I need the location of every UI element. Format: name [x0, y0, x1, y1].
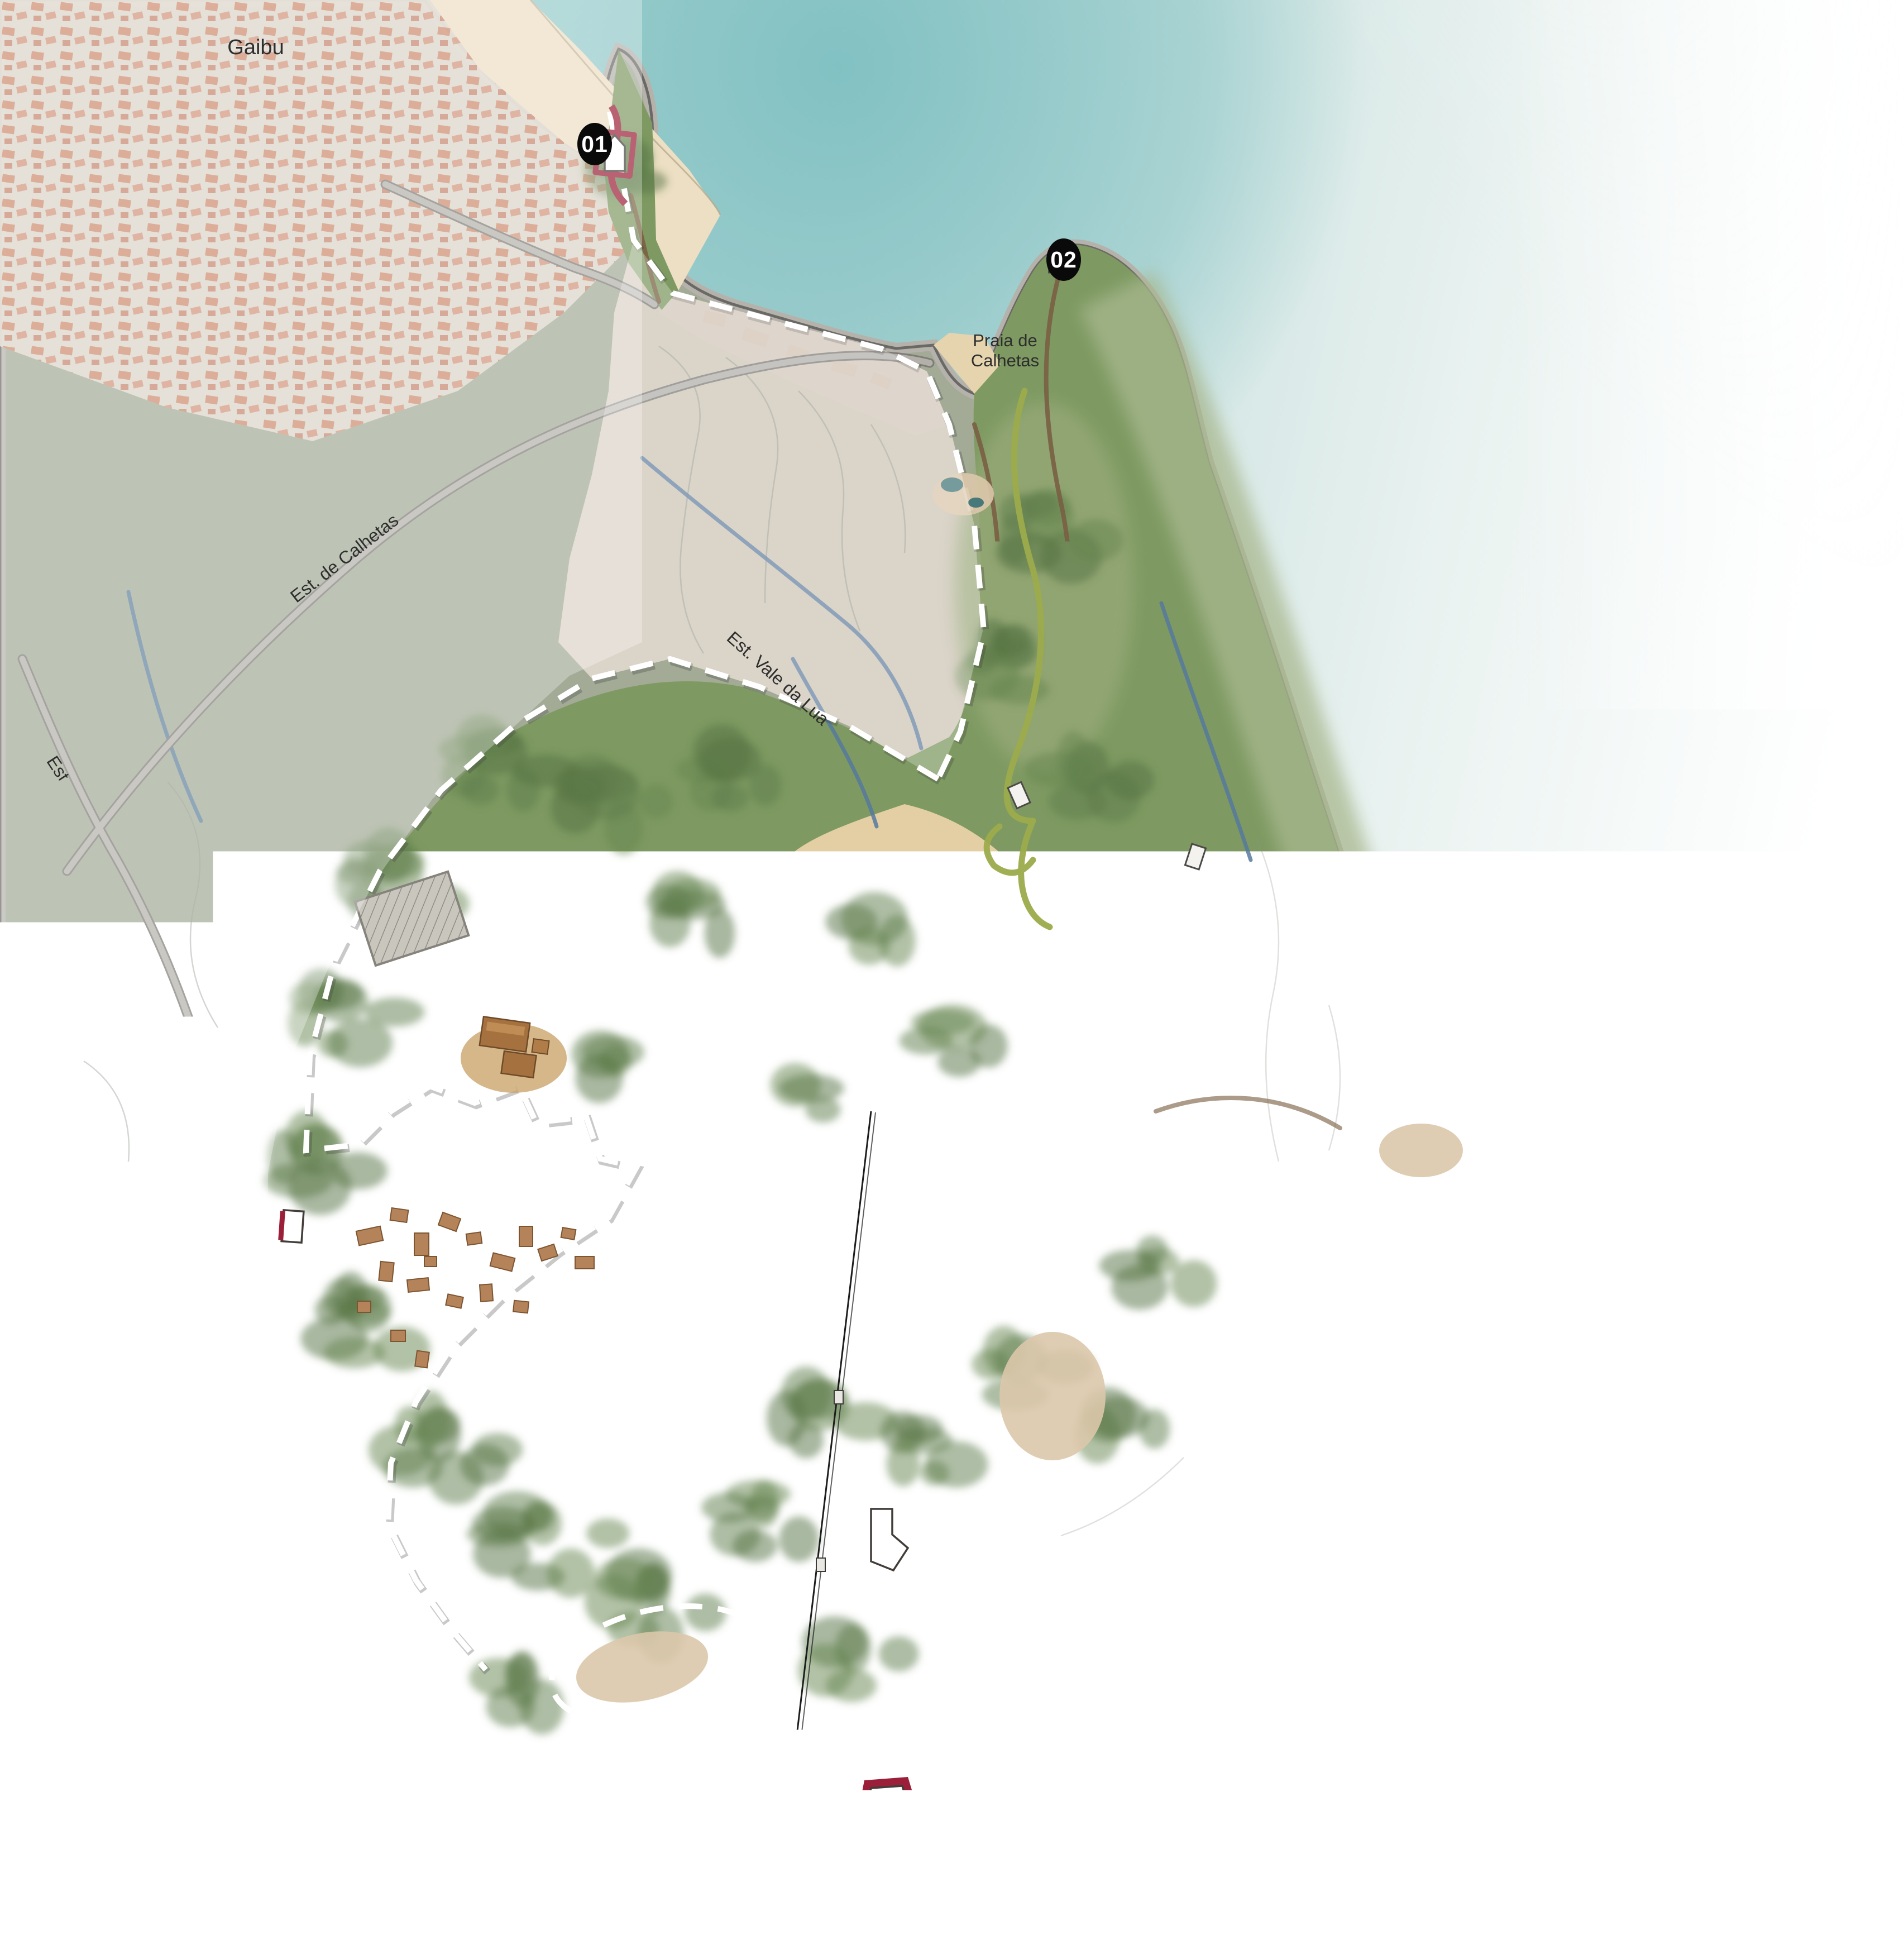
masterplan-map: GaibuPraia deCalhetasEst. de CalhetasEst…: [0, 0, 1904, 1959]
legend-item: 2.Bateria de Calhetas: [1170, 1624, 1537, 1655]
legend-item: 1.Forte de São Francisco Xavier: [1170, 1593, 1537, 1624]
legend-item: 4.Casa do Faroleiro: [1170, 1686, 1537, 1717]
north-label: N: [1173, 1797, 1192, 1827]
legend-column-1: 1.Forte de São Francisco Xavier2.Bateria…: [1170, 1593, 1537, 1810]
legend-item: 6.Vila de Nazaré: [1558, 1593, 1887, 1624]
legend-title: Main attractions: [1170, 1509, 1891, 1540]
legend-column-2: 6.Vila de Nazaré7.Capela Velha8.Praia da…: [1558, 1593, 1887, 1810]
legend-item: 8.Praia da Salvação: [1558, 1655, 1887, 1686]
legend-item: 5.Igreja Nossa Senhora deNazaré e Conven…: [1170, 1717, 1537, 1810]
legend: Main attractions 1.Forte de São Francisc…: [1170, 1509, 1891, 1810]
legend-item: 9.Antigo Quartel: [1558, 1686, 1887, 1717]
legend-item: 3.Suspiro da Baleira: [1170, 1655, 1537, 1686]
legend-item: 10.Forte Castelo do Mar: [1558, 1717, 1887, 1748]
legend-item: 7.Capela Velha: [1558, 1624, 1887, 1655]
